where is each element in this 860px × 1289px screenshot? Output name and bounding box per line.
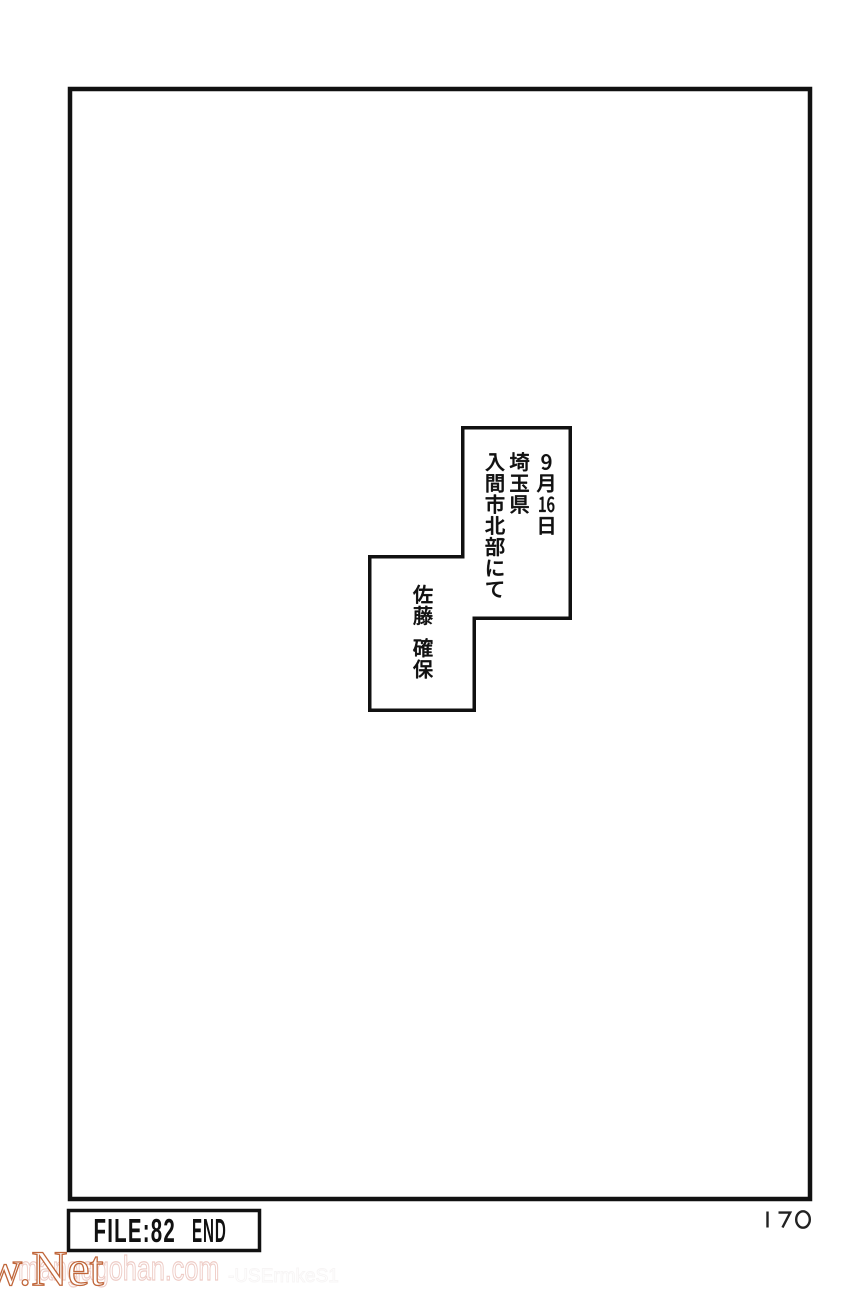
svg-text:END: END: [192, 1214, 227, 1250]
svg-text:FILE:82: FILE:82: [94, 1212, 177, 1249]
svg-text:-USErmkeS1: -USErmkeS1: [228, 1266, 339, 1287]
